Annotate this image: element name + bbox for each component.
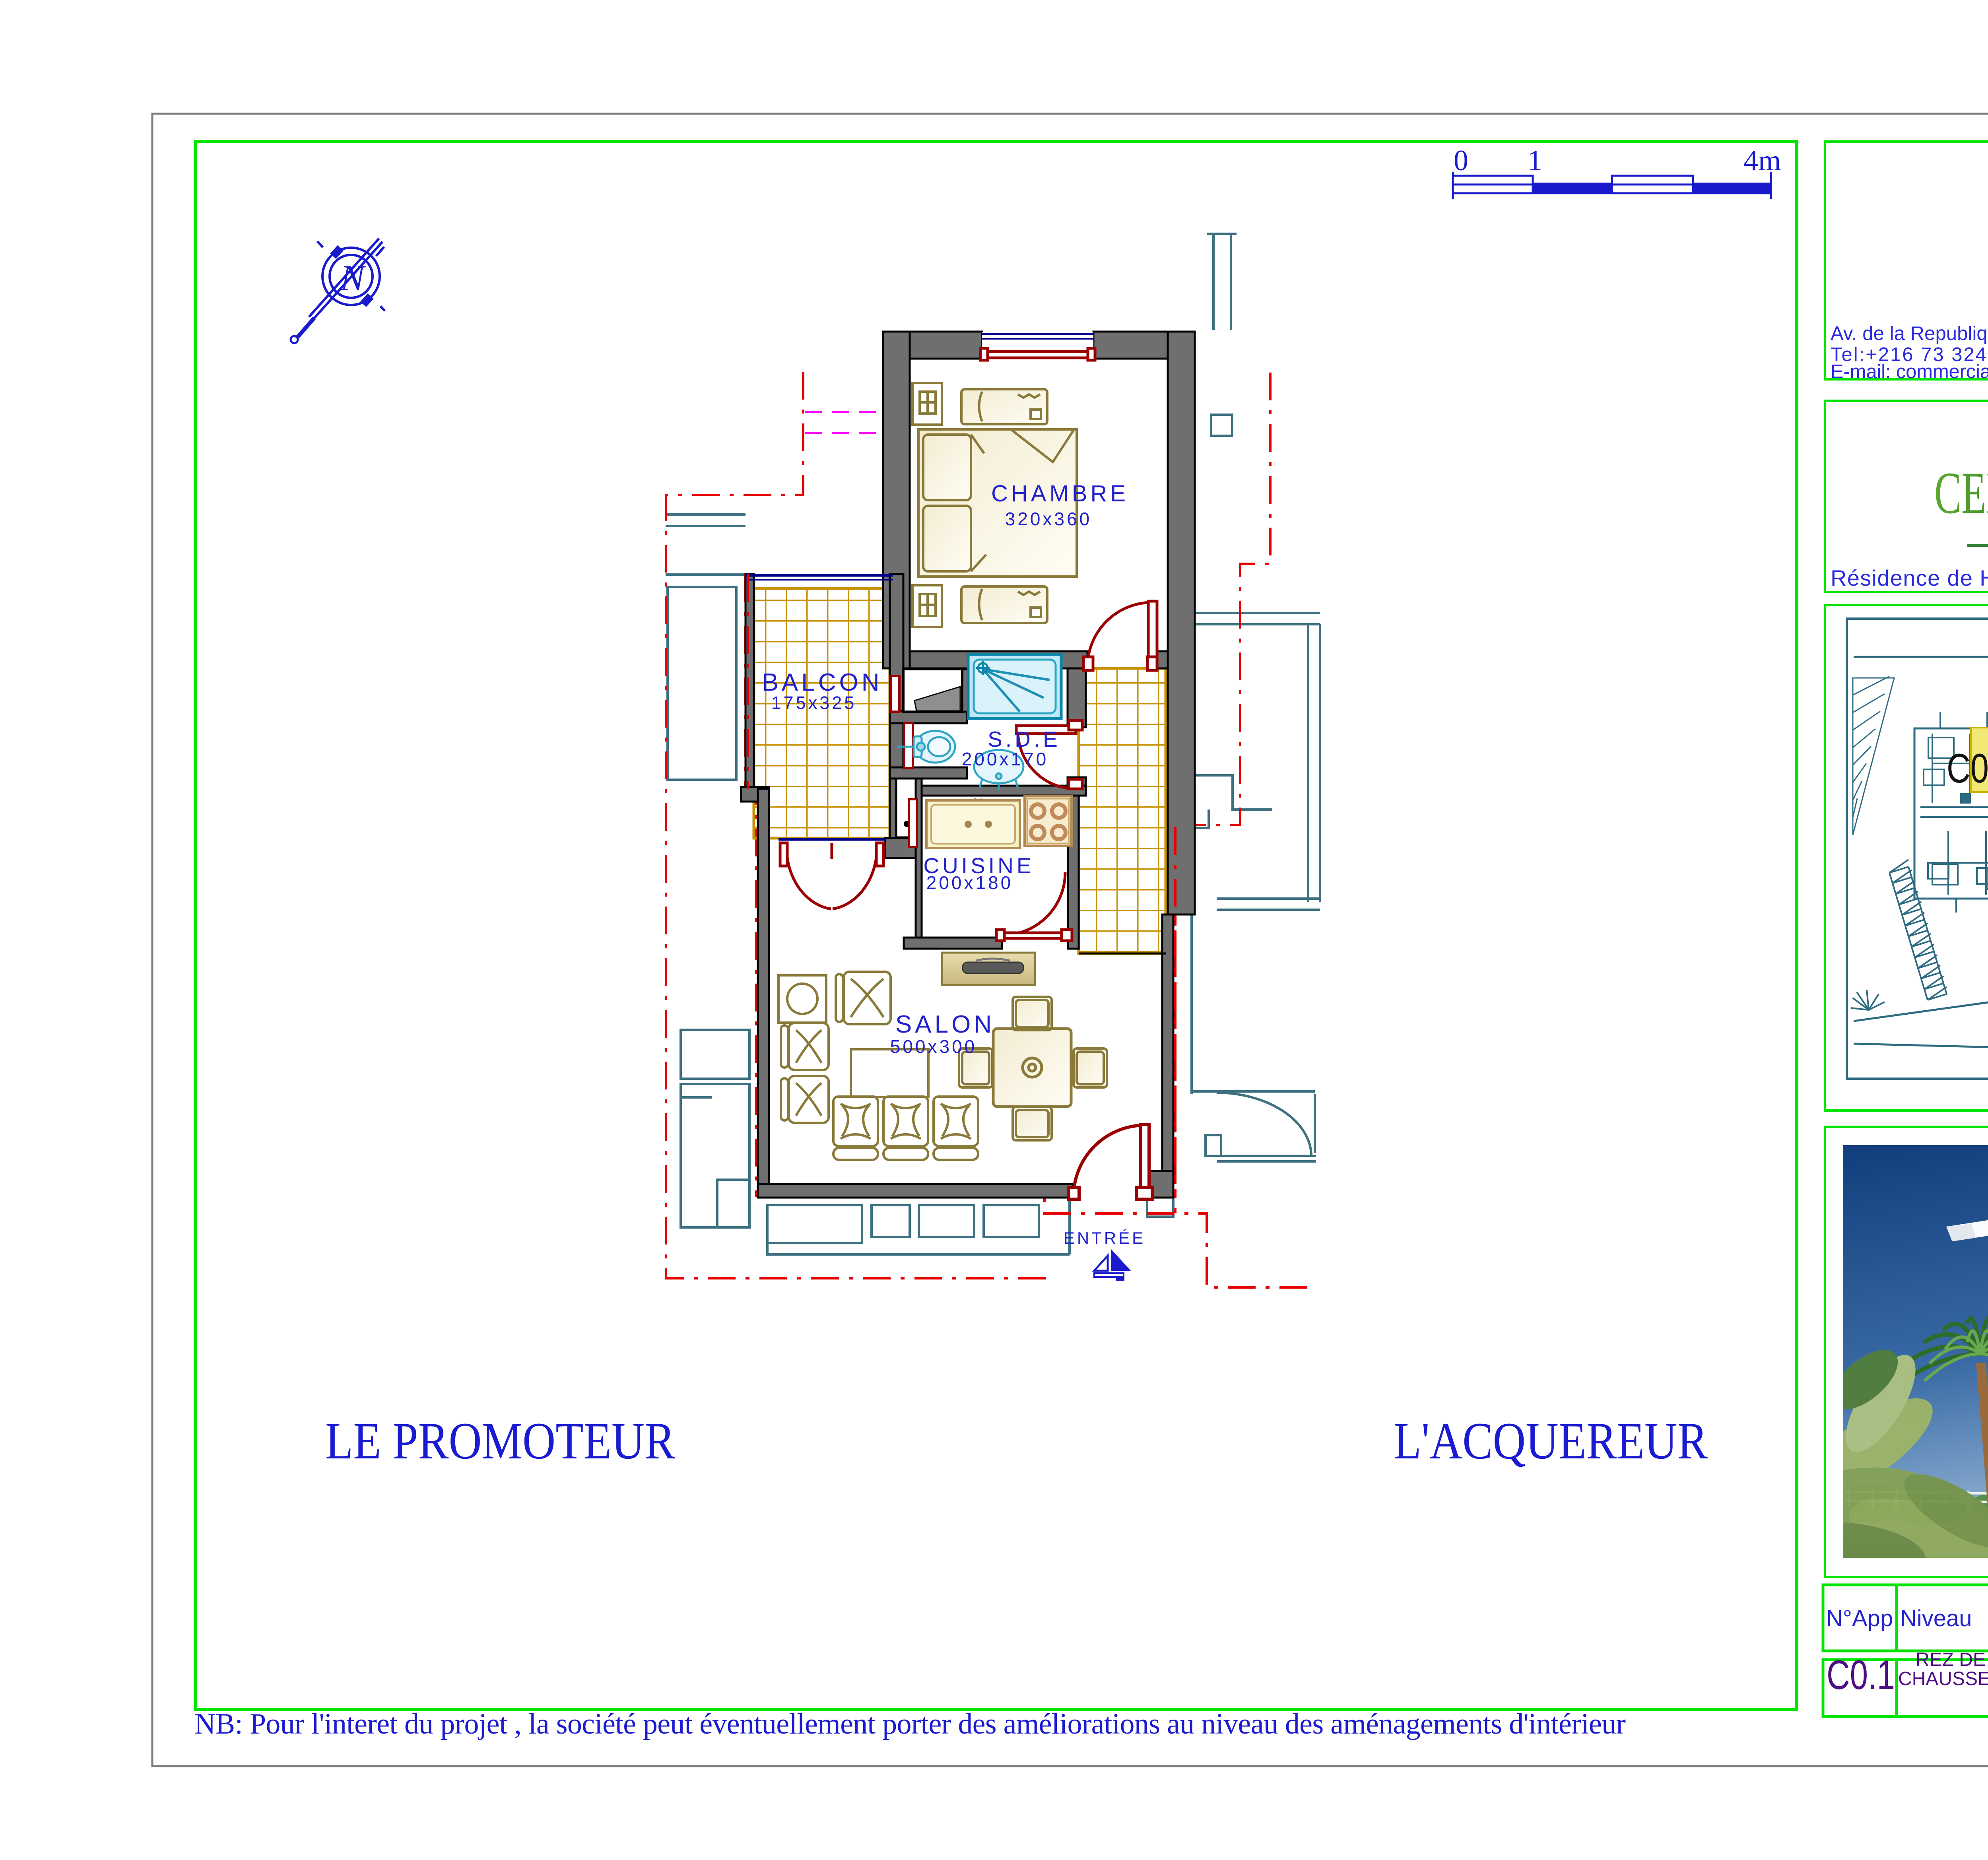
svg-text:200x170: 200x170 [962, 749, 1049, 769]
svg-text:500x300: 500x300 [890, 1036, 977, 1057]
svg-text:N°App: N°App [1826, 1606, 1893, 1631]
svg-text:CENTRAL: CENTRAL [1934, 460, 1988, 526]
svg-text:1: 1 [1528, 144, 1542, 177]
svg-text:200x180: 200x180 [926, 872, 1013, 893]
svg-text:L'ACQUEREUR: L'ACQUEREUR [1394, 1412, 1708, 1470]
svg-text:SALON: SALON [895, 1011, 995, 1038]
svg-text:CHAMBRE: CHAMBRE [991, 481, 1129, 507]
svg-text:S.D.E: S.D.E [988, 727, 1061, 751]
svg-text:Résidence de Haut Standing au: Résidence de Haut Standing au Centre Urb… [1831, 565, 1988, 590]
svg-text:Av. de la Republique.B10 Imm.: Av. de la Republique.B10 Imm. Laatiri 40… [1831, 323, 1988, 344]
svg-text:Niveau: Niveau [1900, 1606, 1972, 1631]
svg-text:N: N [340, 258, 366, 298]
svg-text:NB: Pour l'interet du projet ,: NB: Pour l'interet du projet , la sociét… [194, 1708, 1626, 1740]
svg-text:E-mail: commercial@immospil.co: E-mail: commercial@immospil.com.tn Site … [1831, 361, 1988, 382]
svg-text:4m: 4m [1743, 144, 1781, 177]
svg-text:REZ DE: REZ DE [1916, 1649, 1986, 1670]
svg-text:LE PROMOTEUR: LE PROMOTEUR [325, 1412, 675, 1470]
svg-text:175x325: 175x325 [771, 693, 857, 713]
svg-text:0: 0 [1454, 144, 1468, 177]
svg-text:CHAUSSEE: CHAUSSEE [1898, 1668, 1988, 1689]
svg-text:BALCON: BALCON [762, 669, 883, 696]
svg-text:320x360: 320x360 [1005, 509, 1092, 529]
svg-text:C0.1: C0.1 [1947, 746, 1988, 792]
svg-text:C0.1: C0.1 [1827, 1652, 1895, 1698]
svg-text:ENTRÉE: ENTRÉE [1064, 1229, 1145, 1247]
